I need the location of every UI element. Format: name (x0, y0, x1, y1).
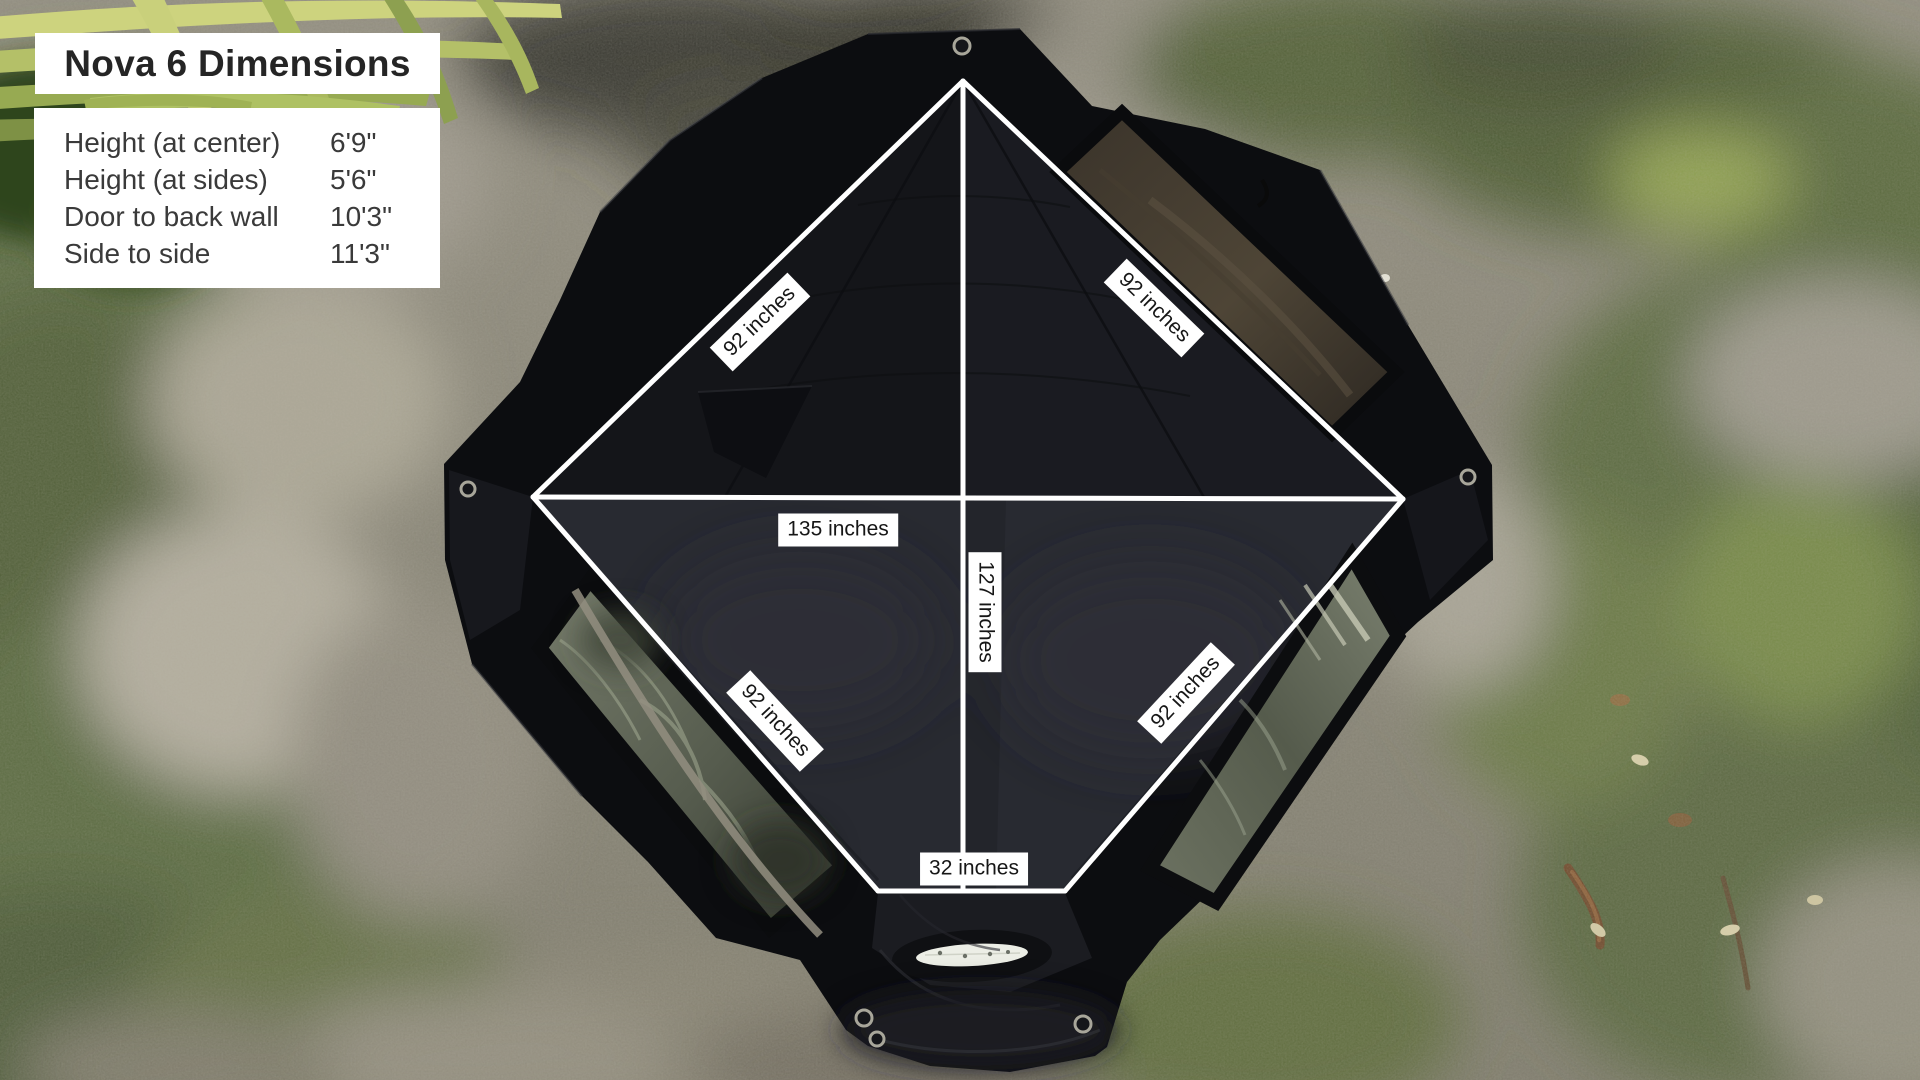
spec-value: 10'3" (330, 198, 392, 235)
spec-row-side-to-side: Side to side 11'3" (64, 235, 440, 272)
dim-label-door-to-back: 127 inches (969, 552, 1002, 672)
tent-dimensions-image: 92 inches 92 inches 92 inches 92 inches … (0, 0, 1920, 1080)
spec-label: Door to back wall (64, 198, 330, 235)
info-card-title: Nova 6 Dimensions (35, 33, 440, 94)
spec-value: 11'3" (330, 235, 390, 272)
spec-label: Height (at sides) (64, 161, 330, 198)
spec-label: Side to side (64, 235, 330, 272)
spec-label: Height (at center) (64, 124, 330, 161)
dim-label-side-to-side: 135 inches (778, 514, 898, 547)
info-card-body: Height (at center) 6'9" Height (at sides… (34, 108, 440, 288)
spec-row-height-sides: Height (at sides) 5'6" (64, 161, 440, 198)
dim-label-door-width: 32 inches (920, 853, 1028, 886)
line-width (533, 497, 1403, 499)
spec-row-height-center: Height (at center) 6'9" (64, 124, 440, 161)
card-title-text: Nova 6 Dimensions (64, 43, 410, 85)
spec-value: 5'6" (330, 161, 376, 198)
spec-value: 6'9" (330, 124, 376, 161)
spec-row-door-to-back: Door to back wall 10'3" (64, 198, 440, 235)
